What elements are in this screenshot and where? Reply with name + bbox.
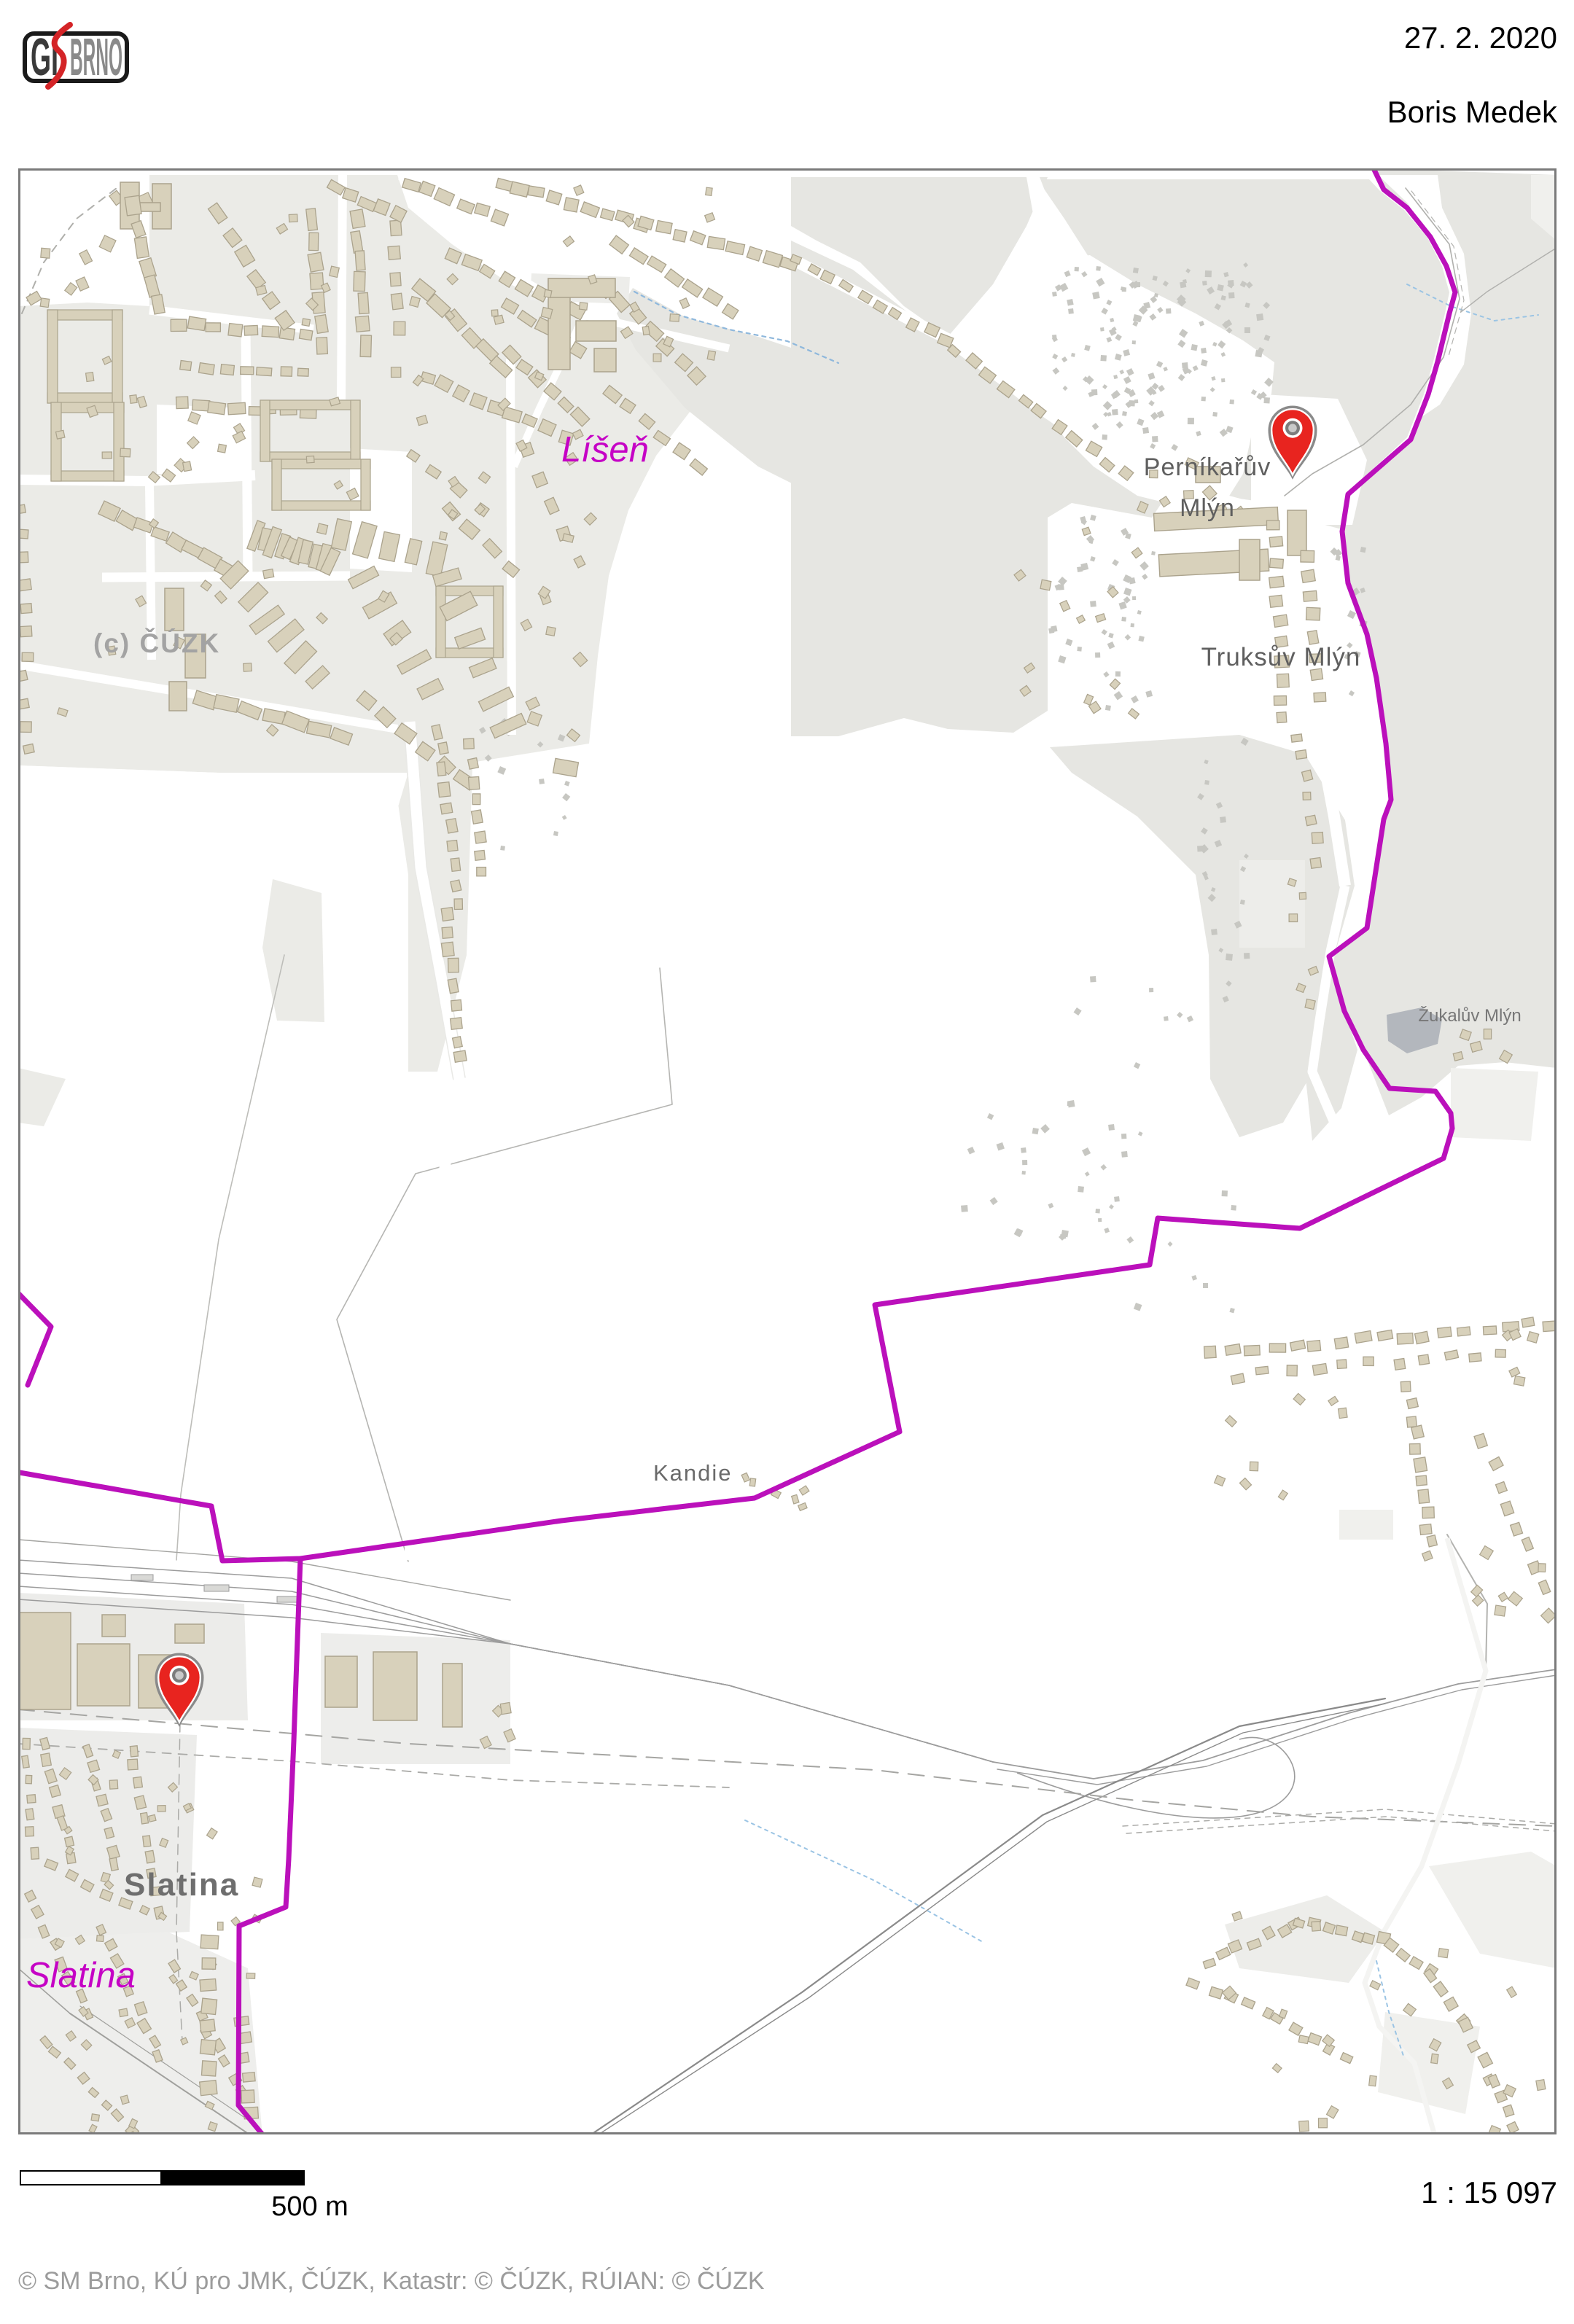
svg-text:Truksův Mlýn: Truksův Mlýn — [1201, 643, 1361, 671]
svg-text:Perníkařův: Perníkařův — [1144, 453, 1271, 481]
svg-text:(c) ČÚZK: (c) ČÚZK — [93, 628, 220, 658]
svg-text:Mlýn: Mlýn — [1180, 494, 1235, 522]
svg-text:Líšeň: Líšeň — [561, 430, 649, 469]
svg-text:Slatina: Slatina — [124, 1867, 239, 1903]
svg-text:Kandie: Kandie — [653, 1460, 733, 1486]
svg-text:BRNO: BRNO — [70, 28, 122, 87]
svg-text:Žukalův Mlýn: Žukalův Mlýn — [1418, 1006, 1521, 1026]
svg-text:Slatina: Slatina — [26, 1956, 136, 1995]
